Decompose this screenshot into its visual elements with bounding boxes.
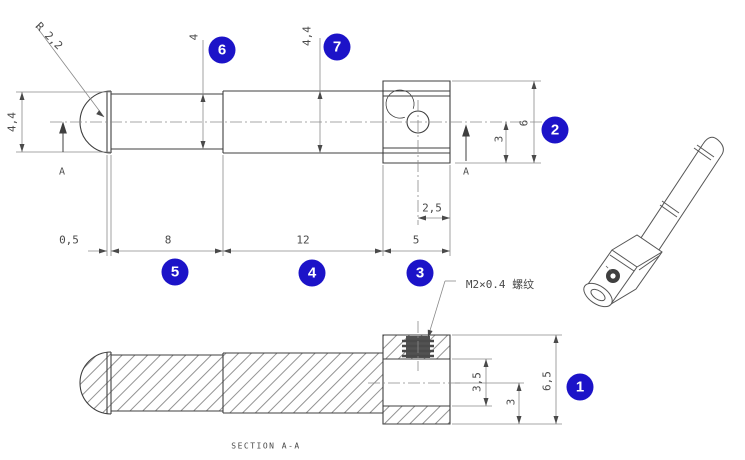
section-mark-left: A xyxy=(59,167,65,178)
dim-head-total-height: 6,5 xyxy=(541,371,554,391)
isometric-view xyxy=(580,137,724,311)
dim-tip-diameter: 4,4 xyxy=(6,112,19,132)
dim-segment2-length: 12 xyxy=(296,234,309,247)
dim-section-axis-to-bottom: 3 xyxy=(505,399,518,406)
front-view-arrowheads xyxy=(20,81,537,254)
callout-badge-1: 1 xyxy=(567,374,594,401)
front-view-centerlines xyxy=(50,100,548,225)
engineering-drawing-page: R 2,2 4,4 4 4,4 6 3 A A 2,5 0,5 8 12 5 M… xyxy=(0,0,745,460)
thread-callout: M2×0.4 螺纹 xyxy=(466,276,534,292)
dim-body-diameter: 4,4 xyxy=(301,26,314,46)
iso-dome xyxy=(703,137,723,156)
callout-badge-2: 2 xyxy=(542,117,569,144)
dim-segment1-length: 8 xyxy=(165,234,172,247)
dim-hole-to-end: 2,5 xyxy=(422,202,442,215)
dim-neck-width: 0,5 xyxy=(59,234,79,247)
section-mark-right: A xyxy=(463,167,469,178)
dim-mid-diameter: 4 xyxy=(188,34,201,41)
dim-axis-to-bottom: 3 xyxy=(493,136,506,143)
section-cut-arrows xyxy=(60,123,469,161)
drawing-canvas xyxy=(0,0,745,460)
dim-head-height: 6 xyxy=(518,120,531,127)
callout-badge-7: 7 xyxy=(324,34,351,61)
callout-badge-5: 5 xyxy=(162,259,189,286)
callout-badge-6: 6 xyxy=(209,37,236,64)
dim-head-length: 5 xyxy=(413,234,420,247)
front-view-dimension-lines xyxy=(16,26,541,256)
dim-hole-depth: 3,5 xyxy=(471,372,484,392)
section-view-label: SECTION A-A xyxy=(231,442,300,451)
callout-badge-3: 3 xyxy=(407,260,434,287)
callout-badge-4: 4 xyxy=(299,260,326,287)
